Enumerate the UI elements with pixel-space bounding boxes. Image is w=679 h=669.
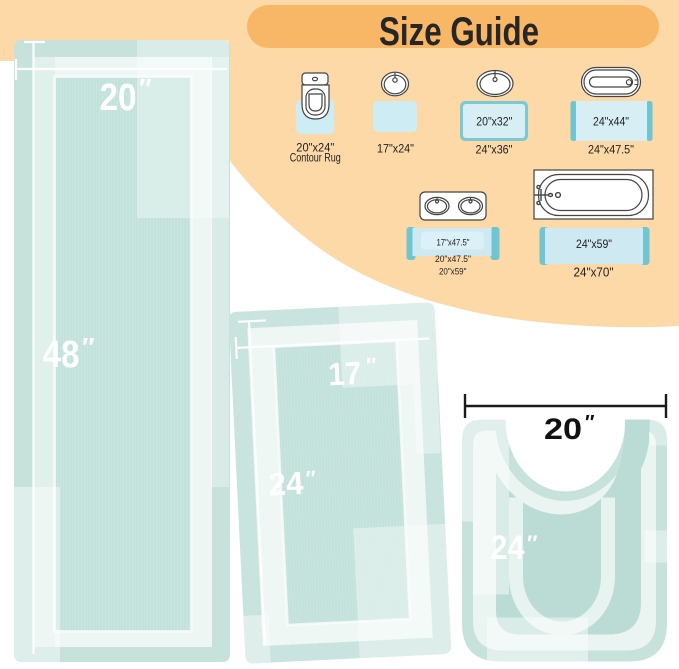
svg-text:24"x47.5": 24"x47.5"	[588, 143, 634, 157]
svg-text:″: ″	[527, 531, 538, 556]
svg-text:24"x59": 24"x59"	[576, 237, 612, 251]
svg-text:17"x47.5": 17"x47.5"	[437, 238, 470, 249]
svg-text:24: 24	[491, 529, 525, 567]
svg-text:17: 17	[327, 355, 362, 393]
svg-text:Contour Rug: Contour Rug	[290, 153, 341, 165]
svg-text:20: 20	[544, 413, 582, 446]
svg-text:17"x24": 17"x24"	[377, 142, 414, 156]
svg-text:20"x47.5": 20"x47.5"	[435, 254, 471, 264]
svg-text:20"x59": 20"x59"	[439, 267, 467, 277]
svg-text:48: 48	[43, 334, 80, 376]
svg-text:″: ″	[305, 467, 316, 490]
svg-text:24"x44": 24"x44"	[593, 114, 629, 128]
svg-text:24"x70": 24"x70"	[574, 266, 614, 280]
svg-text:″: ″	[139, 73, 151, 103]
svg-text:24"x36": 24"x36"	[476, 143, 513, 157]
svg-text:20: 20	[100, 77, 137, 119]
svg-text:Size Guide: Size Guide	[379, 10, 539, 54]
svg-text:20"x32": 20"x32"	[476, 114, 512, 128]
svg-text:″: ″	[82, 332, 94, 362]
svg-text:″: ″	[585, 412, 595, 434]
svg-text:24: 24	[268, 465, 305, 503]
svg-text:″: ″	[366, 354, 377, 377]
